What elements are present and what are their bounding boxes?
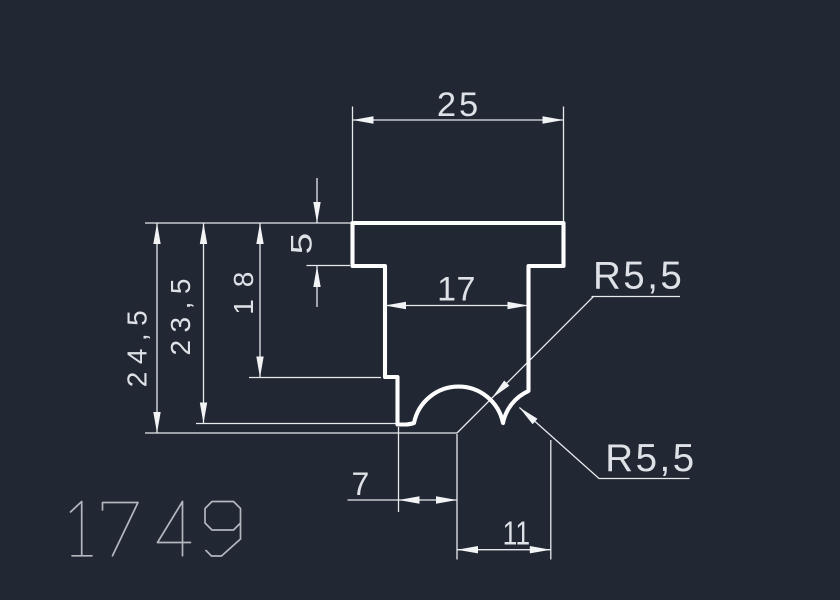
svg-text:R5,5: R5,5: [593, 255, 684, 298]
svg-text:R5,5: R5,5: [605, 437, 696, 480]
svg-text:24,5: 24,5: [122, 303, 153, 388]
svg-text:7: 7: [352, 466, 370, 502]
svg-text:17: 17: [437, 271, 476, 309]
svg-text:5: 5: [285, 233, 318, 255]
svg-text:25: 25: [437, 86, 481, 124]
svg-text:23,5: 23,5: [165, 271, 196, 356]
svg-text:18: 18: [228, 260, 259, 315]
svg-text:11: 11: [503, 516, 530, 552]
